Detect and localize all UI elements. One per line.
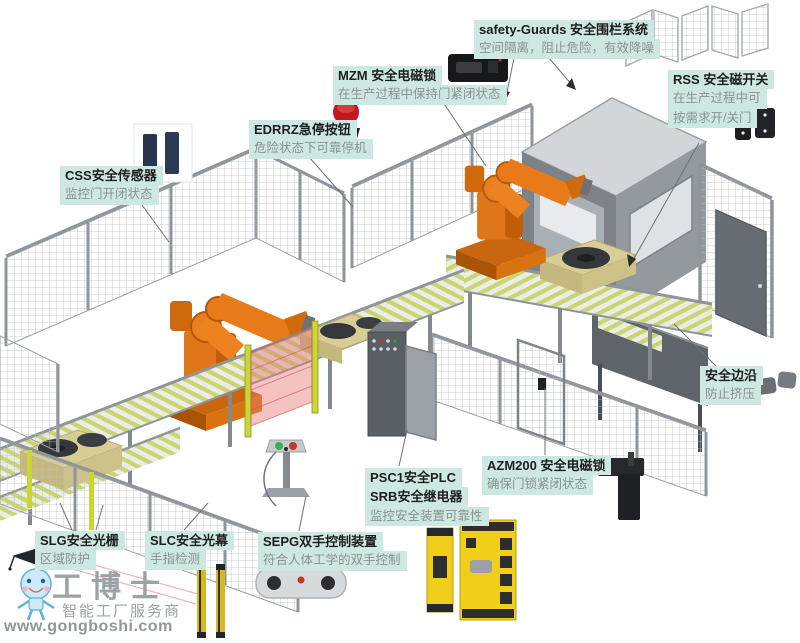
two-hand-pedestal [262,440,310,506]
safety-relay-icon [427,528,453,612]
label-slc: SLC安全光幕 手指检测 [145,531,234,570]
label-safety-edge: 安全边沿 防止挤压 [700,366,763,405]
sepg-device-icon [256,568,346,598]
label-safety-guards-subtitle: 空间隔离，阻止危险，有效降噪 [474,39,660,58]
label-slc-subtitle: 手指检测 [145,550,206,569]
label-slc-title: SLC安全光幕 [145,531,234,550]
label-psc1-srb-subtitle: 监控安全装置可靠性 [365,507,489,526]
label-azm200-subtitle: 确保门锁紧闭状态 [482,475,593,494]
safety-plc-icon [460,520,516,620]
label-css: CSS安全传感器 监控门开闭状态 [60,166,163,205]
label-rss-subtitle-2: 按需求开/关门 [668,109,757,128]
label-safety-edge-subtitle: 防止挤压 [700,385,761,404]
label-sepg: SEPG双手控制装置 符合人体工学的双手控制 [258,532,407,571]
label-rss-subtitle-1: 在生产过程中可 [668,89,767,108]
azm-door [518,340,564,444]
label-azm200: AZM200 安全电磁锁 确保门锁紧闭状态 [482,456,611,495]
label-slg-title: SLG安全光栅 [35,531,125,550]
label-mzm-subtitle: 在生产过程中保持门紧闭状态 [333,85,507,104]
label-sepg-title: SEPG双手控制装置 [258,532,383,551]
label-safety-edge-title: 安全边沿 [700,366,763,385]
label-edrrz: EDRRZ急停按钮 危险状态下可靠停机 [249,120,373,159]
watermark-url: www.gongboshi.com [4,618,173,636]
label-edrrz-title: EDRRZ急停按钮 [249,120,357,139]
label-css-title: CSS安全传感器 [60,166,163,185]
control-cabinet [368,322,436,440]
fence-corridor [256,149,344,282]
label-mzm: MZM 安全电磁锁 在生产过程中保持门紧闭状态 [333,66,507,105]
fence-left-end [0,336,58,452]
label-srb-title: SRB安全继电器 [365,487,468,506]
label-mzm-title: MZM 安全电磁锁 [333,66,442,85]
label-azm200-title: AZM200 安全电磁锁 [482,456,611,475]
label-edrrz-subtitle: 危险状态下可靠停机 [249,139,373,158]
right-cell-door [716,210,766,336]
cabinet-door [406,346,436,440]
label-slg: SLG安全光栅 区域防护 [35,531,125,570]
infographic-canvas: safety-Guards 安全围栏系统 空间隔离，阻止危险，有效降噪 MZM … [0,0,800,643]
label-slg-subtitle: 区域防护 [35,550,96,569]
label-css-subtitle: 监控门开闭状态 [60,185,159,204]
label-sepg-subtitle: 符合人体工学的双手控制 [258,551,407,570]
label-rss-title: RSS 安全磁开关 [668,70,774,89]
label-rss: RSS 安全磁开关 在生产过程中可 按需求开/关门 [668,70,774,128]
label-psc1-srb: PSC1安全PLC SRB安全继电器 监控安全装置可靠性 [365,468,489,526]
label-psc1-title: PSC1安全PLC [365,468,462,487]
label-safety-guards: safety-Guards 安全围栏系统 空间隔离，阻止危险，有效降噪 [474,20,660,59]
label-safety-guards-title: safety-Guards 安全围栏系统 [474,20,654,39]
